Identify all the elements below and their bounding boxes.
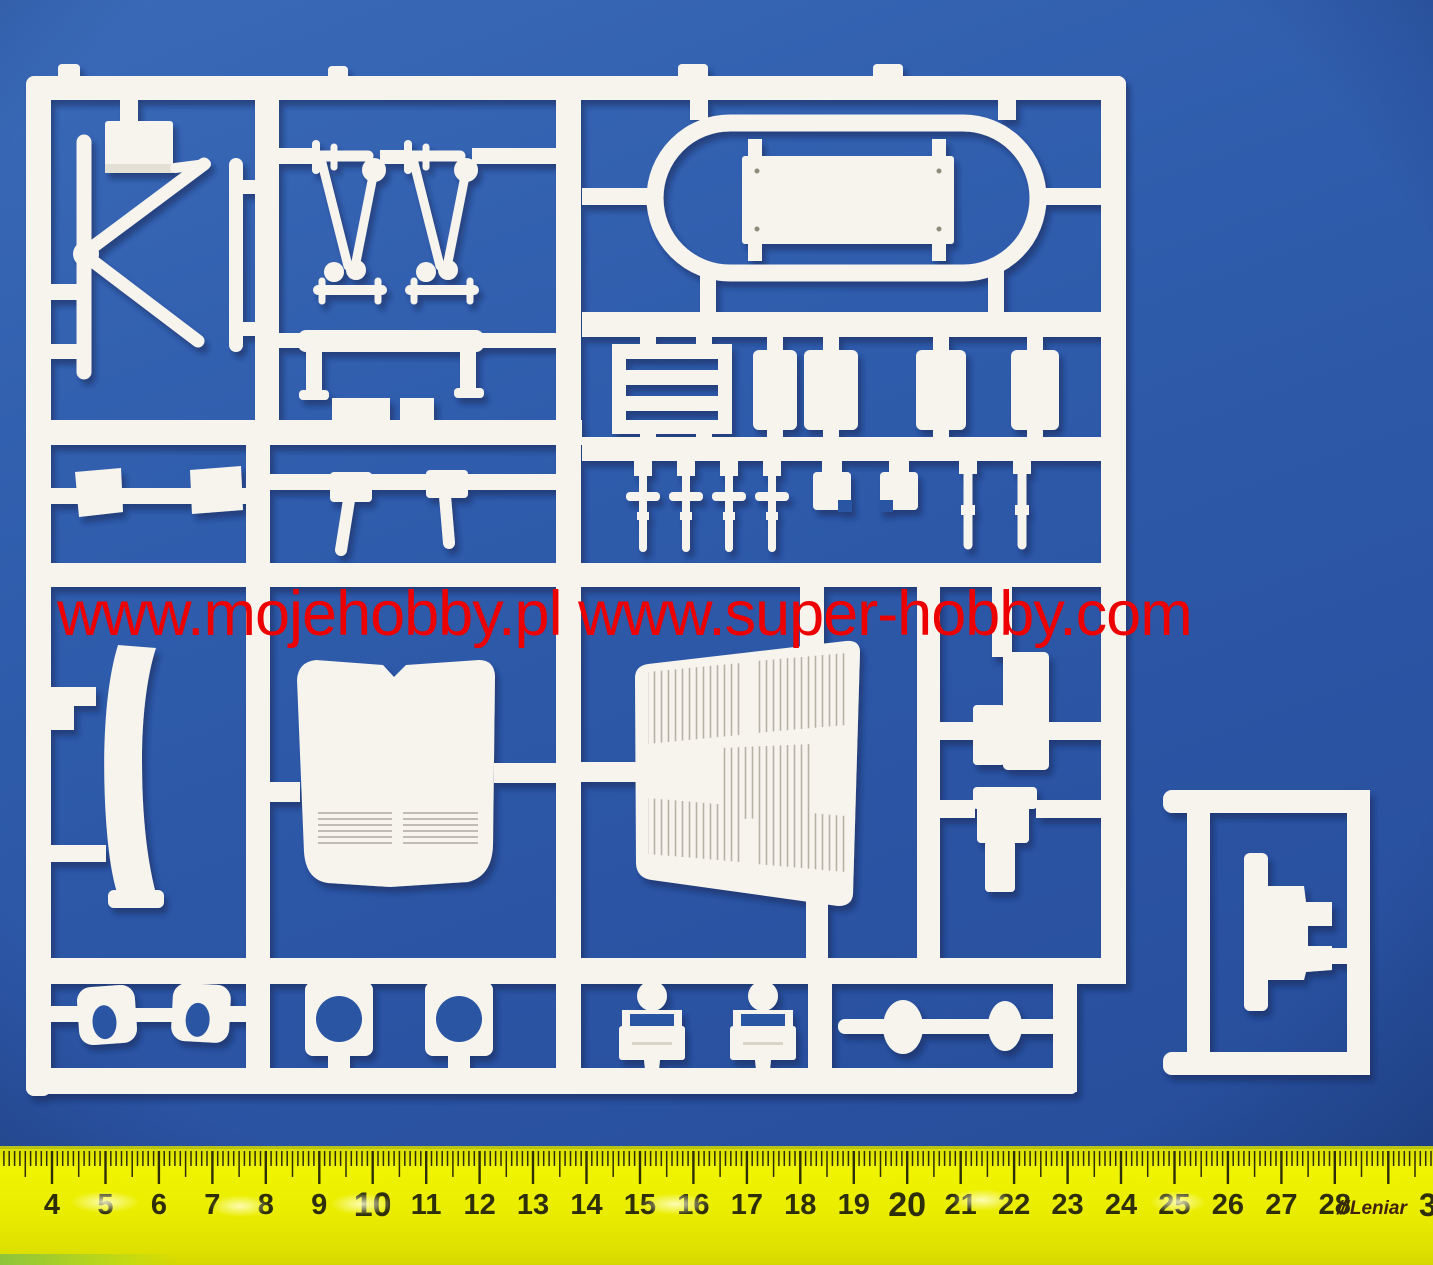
ruler-bottom-edge — [0, 1254, 178, 1265]
ruler-number: 9 — [311, 1189, 327, 1222]
ruler-number: 26 — [1212, 1189, 1244, 1222]
ruler-number: 6 — [151, 1189, 167, 1222]
ruler-shine — [330, 1193, 394, 1215]
ruler-number: 11 — [411, 1189, 442, 1222]
ruler-number: 20 — [888, 1186, 926, 1225]
roof-plate-part — [742, 139, 954, 261]
ruler-number: 27 — [1265, 1189, 1297, 1222]
product-photo: www.mojehobby.pl www.super-hobby.com 456… — [0, 0, 1433, 1265]
brand-name: Leniar — [1350, 1198, 1407, 1219]
ruler-number: 4 — [44, 1189, 60, 1222]
ruler-number: 14 — [570, 1189, 602, 1222]
ruler-shine — [1150, 1191, 1206, 1213]
ruler-number: 18 — [784, 1189, 816, 1222]
ruler-shine — [210, 1195, 270, 1217]
ruler-number: 13 — [517, 1189, 549, 1222]
ruler-number: 19 — [838, 1189, 870, 1222]
ruler-shine — [950, 1189, 1014, 1211]
shop-watermark-text: www.mojehobby.pl www.super-hobby.com — [57, 578, 1417, 650]
ruler-brand-logo: ///Leniar — [1337, 1198, 1407, 1220]
ruler-number: 24 — [1105, 1189, 1137, 1222]
ruler-edge-digit: 3 — [1419, 1187, 1433, 1224]
ruler-number: 12 — [463, 1189, 495, 1222]
ruler-number: 17 — [731, 1189, 763, 1222]
brand-slashes-icon: /// — [1337, 1198, 1347, 1219]
ruler-shine — [70, 1191, 140, 1213]
ruler-number: 23 — [1051, 1189, 1083, 1222]
ruler: 4567891011121314151617181920212223242526… — [0, 1146, 1433, 1265]
ruler-shine — [640, 1193, 710, 1215]
